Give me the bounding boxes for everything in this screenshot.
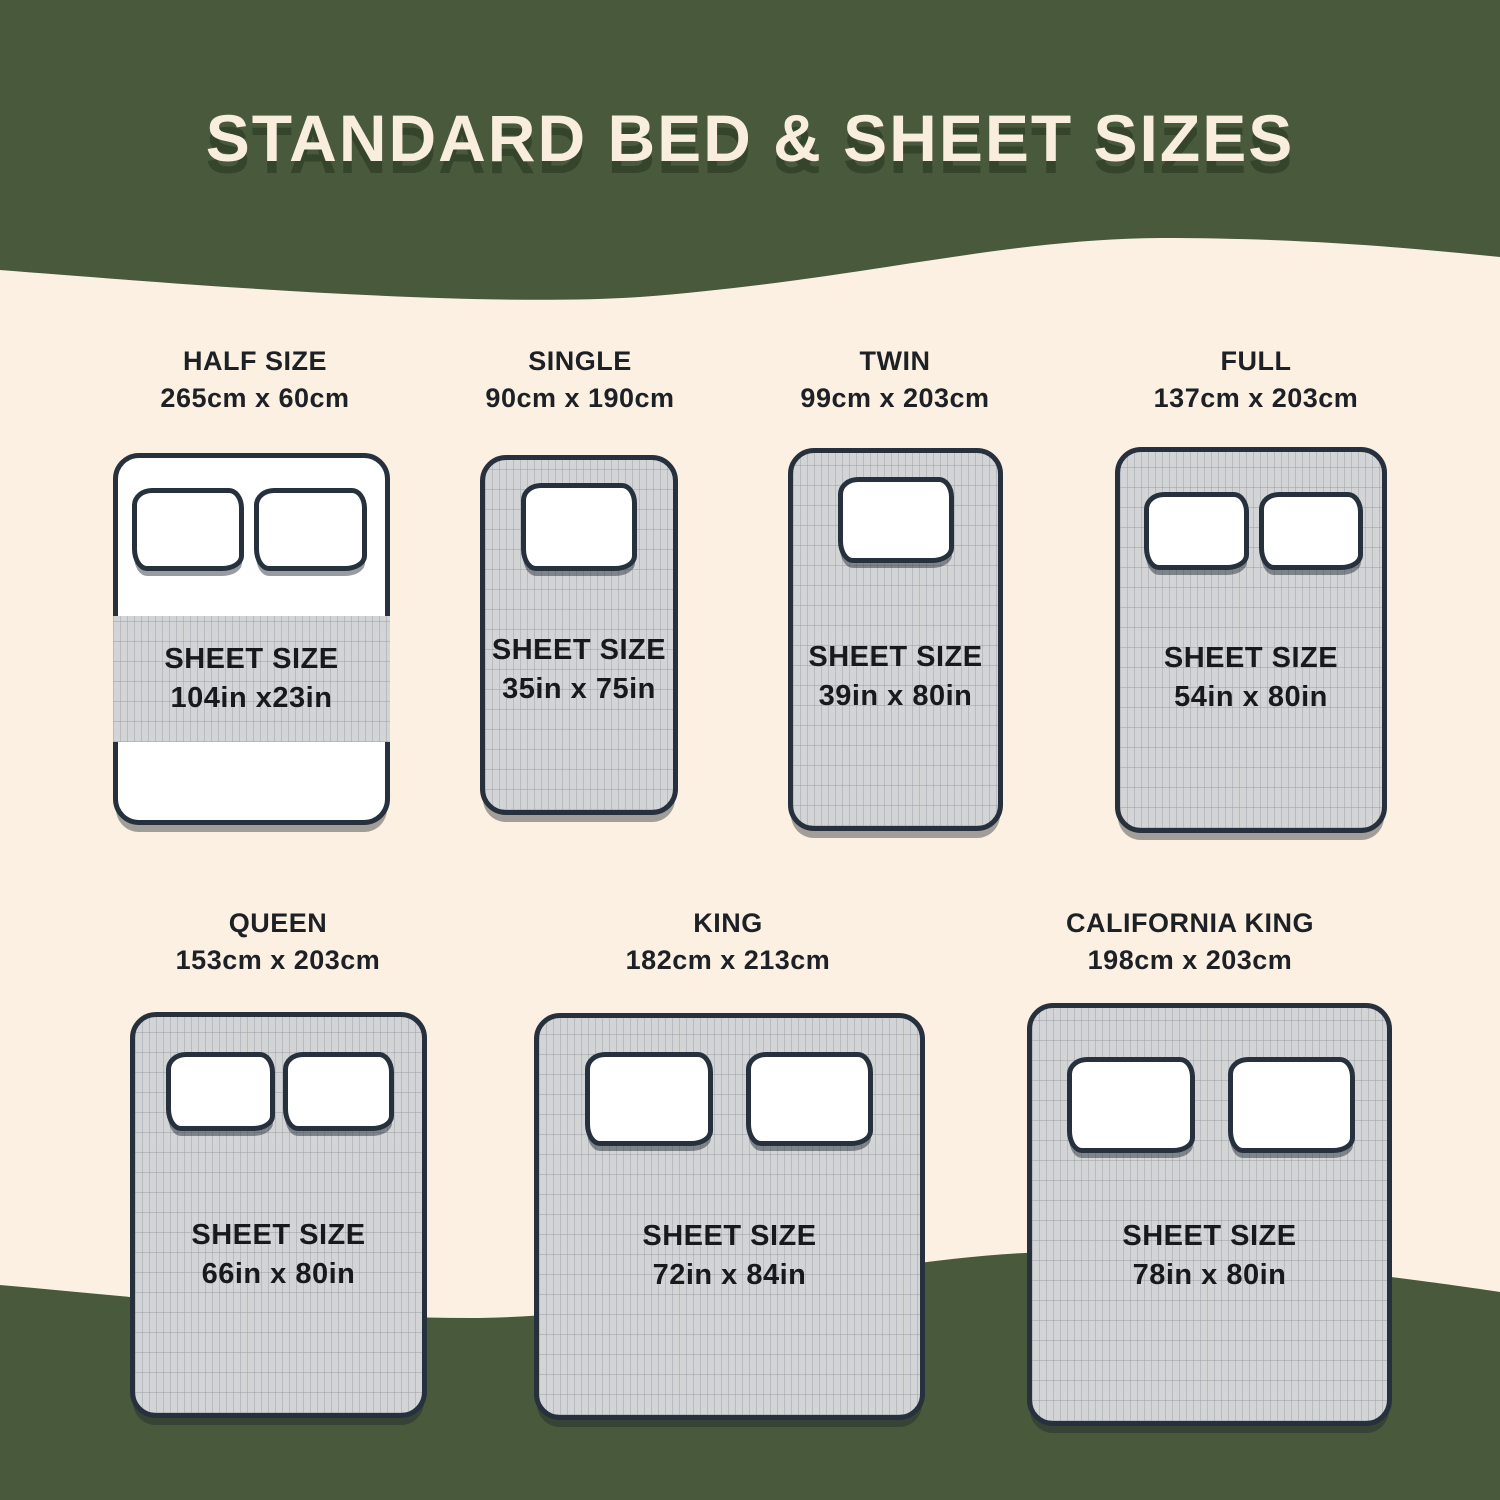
sheet-size-caption: SHEET SIZE 39in x 80in	[793, 638, 998, 716]
infographic-canvas: STANDARD BED & SHEET SIZES HALF SIZE 265…	[0, 0, 1500, 1500]
bed-name: CALIFORNIA KING	[990, 905, 1390, 942]
label-half-size: HALF SIZE 265cm x 60cm	[90, 343, 420, 417]
pillow-icon	[1228, 1057, 1355, 1153]
pillow-icon	[838, 477, 954, 563]
pillow-icon	[1144, 492, 1249, 570]
sheet-size-value: 39in x 80in	[793, 677, 998, 716]
label-queen: QUEEN 153cm x 203cm	[128, 905, 428, 979]
sheet-size-label: SHEET SIZE	[135, 1216, 422, 1255]
sheet-size-caption: SHEET SIZE 35in x 75in	[485, 631, 673, 709]
pillow-icon	[585, 1052, 713, 1146]
label-twin: TWIN 99cm x 203cm	[745, 343, 1045, 417]
sheet-size-label: SHEET SIZE	[793, 638, 998, 677]
bed-dimensions: 182cm x 213cm	[578, 942, 878, 979]
bed-dimensions: 99cm x 203cm	[745, 380, 1045, 417]
sheet-size-label: SHEET SIZE	[164, 640, 338, 679]
sheet-size-value: 104in x23in	[164, 679, 338, 718]
sheet-size-label: SHEET SIZE	[1032, 1217, 1387, 1256]
sheet-size-value: 54in x 80in	[1120, 678, 1382, 717]
pillow-icon	[283, 1052, 394, 1131]
pillow-icon	[746, 1052, 873, 1146]
label-california-king: CALIFORNIA KING 198cm x 203cm	[990, 905, 1390, 979]
bed-name: HALF SIZE	[90, 343, 420, 380]
bed-name: QUEEN	[128, 905, 428, 942]
sheet-size-caption: SHEET SIZE 72in x 84in	[539, 1217, 920, 1295]
bed-diagram-half-size: SHEET SIZE 104in x23in	[113, 453, 390, 825]
pillow-icon	[521, 483, 637, 571]
bed-diagram-queen: SHEET SIZE 66in x 80in	[130, 1012, 427, 1418]
sheet-size-label: SHEET SIZE	[485, 631, 673, 670]
bed-diagram-king: SHEET SIZE 72in x 84in	[534, 1013, 925, 1420]
bed-name: SINGLE	[430, 343, 730, 380]
bed-dimensions: 137cm x 203cm	[1100, 380, 1412, 417]
bed-dimensions: 265cm x 60cm	[90, 380, 420, 417]
label-king: KING 182cm x 213cm	[578, 905, 878, 979]
page-title: STANDARD BED & SHEET SIZES	[0, 100, 1500, 176]
sheet-size-caption: SHEET SIZE 54in x 80in	[1120, 639, 1382, 717]
pillow-icon	[254, 488, 367, 571]
sheet-size-value: 72in x 84in	[539, 1256, 920, 1295]
pillow-icon	[132, 488, 244, 571]
pillow-icon	[1067, 1057, 1195, 1153]
pillow-icon	[1259, 492, 1363, 570]
pillow-icon	[166, 1052, 275, 1131]
bed-name: KING	[578, 905, 878, 942]
bed-diagram-twin: SHEET SIZE 39in x 80in	[788, 448, 1003, 831]
bed-diagram-california-king: SHEET SIZE 78in x 80in	[1027, 1003, 1392, 1426]
bed-diagram-single: SHEET SIZE 35in x 75in	[480, 455, 678, 815]
bed-dimensions: 153cm x 203cm	[128, 942, 428, 979]
label-single: SINGLE 90cm x 190cm	[430, 343, 730, 417]
bed-name: TWIN	[745, 343, 1045, 380]
bed-diagram-full: SHEET SIZE 54in x 80in	[1115, 447, 1387, 833]
sheet-size-caption: SHEET SIZE 66in x 80in	[135, 1216, 422, 1294]
sheet-size-label: SHEET SIZE	[539, 1217, 920, 1256]
label-full: FULL 137cm x 203cm	[1100, 343, 1412, 417]
bed-name: FULL	[1100, 343, 1412, 380]
sheet-size-caption: SHEET SIZE 78in x 80in	[1032, 1217, 1387, 1295]
sheet-band: SHEET SIZE 104in x23in	[113, 616, 390, 742]
sheet-size-caption: SHEET SIZE 104in x23in	[164, 640, 338, 718]
sheet-size-value: 78in x 80in	[1032, 1256, 1387, 1295]
bed-dimensions: 198cm x 203cm	[990, 942, 1390, 979]
sheet-size-value: 66in x 80in	[135, 1255, 422, 1294]
sheet-size-value: 35in x 75in	[485, 670, 673, 709]
sheet-size-label: SHEET SIZE	[1120, 639, 1382, 678]
bed-dimensions: 90cm x 190cm	[430, 380, 730, 417]
